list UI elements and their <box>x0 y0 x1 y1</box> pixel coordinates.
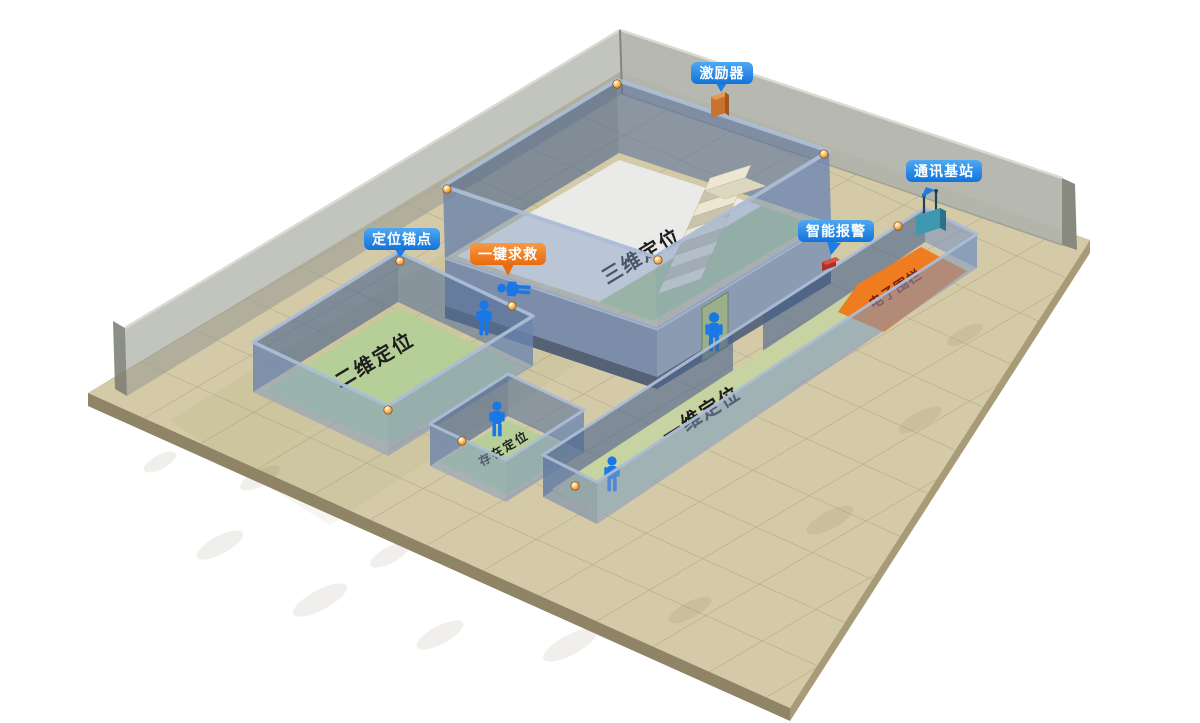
anchor-ball-icon[interactable] <box>396 257 404 265</box>
anchor-ball-icon[interactable] <box>571 482 579 490</box>
badge-exciter-label: 激励器 <box>700 65 745 81</box>
anchor-ball-icon[interactable] <box>458 437 466 445</box>
anchor-ball-icon[interactable] <box>384 406 392 414</box>
badge-sos-label: 一键求救 <box>478 246 538 262</box>
anchor-ball-icon[interactable] <box>820 150 828 158</box>
anchor-ball-icon[interactable] <box>443 185 451 193</box>
anchor-ball-icon[interactable] <box>894 222 902 230</box>
anchor-ball-icon[interactable] <box>613 80 621 88</box>
badge-comm-station-label: 通讯基站 <box>914 163 974 179</box>
badge-smart-alarm-label: 智能报警 <box>805 223 866 239</box>
perimeter-wall-left-cap <box>113 321 127 396</box>
positioning-demo-scene: 三维定位 二维定位 存在定位 <box>0 0 1200 723</box>
anchor-ball-icon[interactable] <box>508 302 516 310</box>
badge-anchor-label: 定位锚点 <box>372 231 432 247</box>
perimeter-wall-right-cap <box>1062 178 1077 250</box>
anchor-ball-icon[interactable] <box>654 256 662 264</box>
